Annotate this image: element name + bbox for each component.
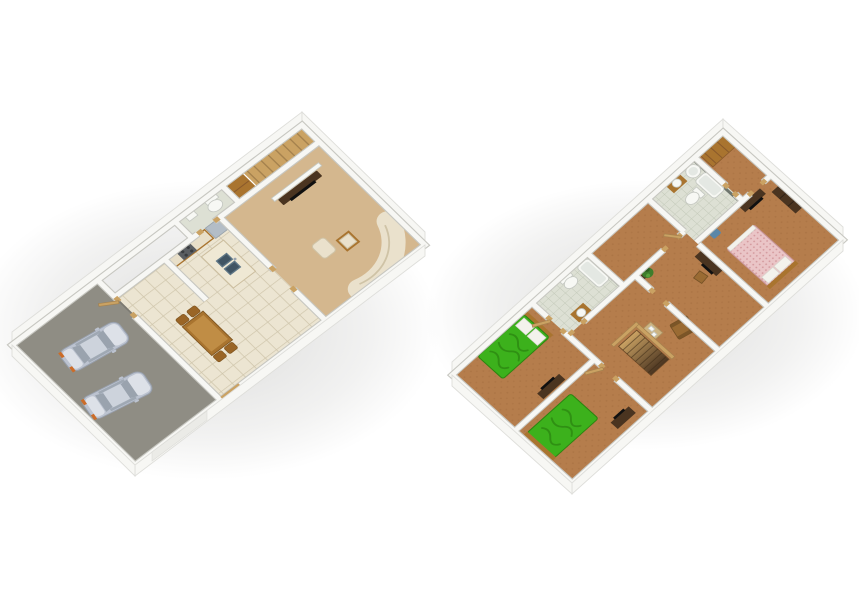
floor-plan-render-canvas [0,0,859,607]
floor-plans-svg [0,0,859,607]
